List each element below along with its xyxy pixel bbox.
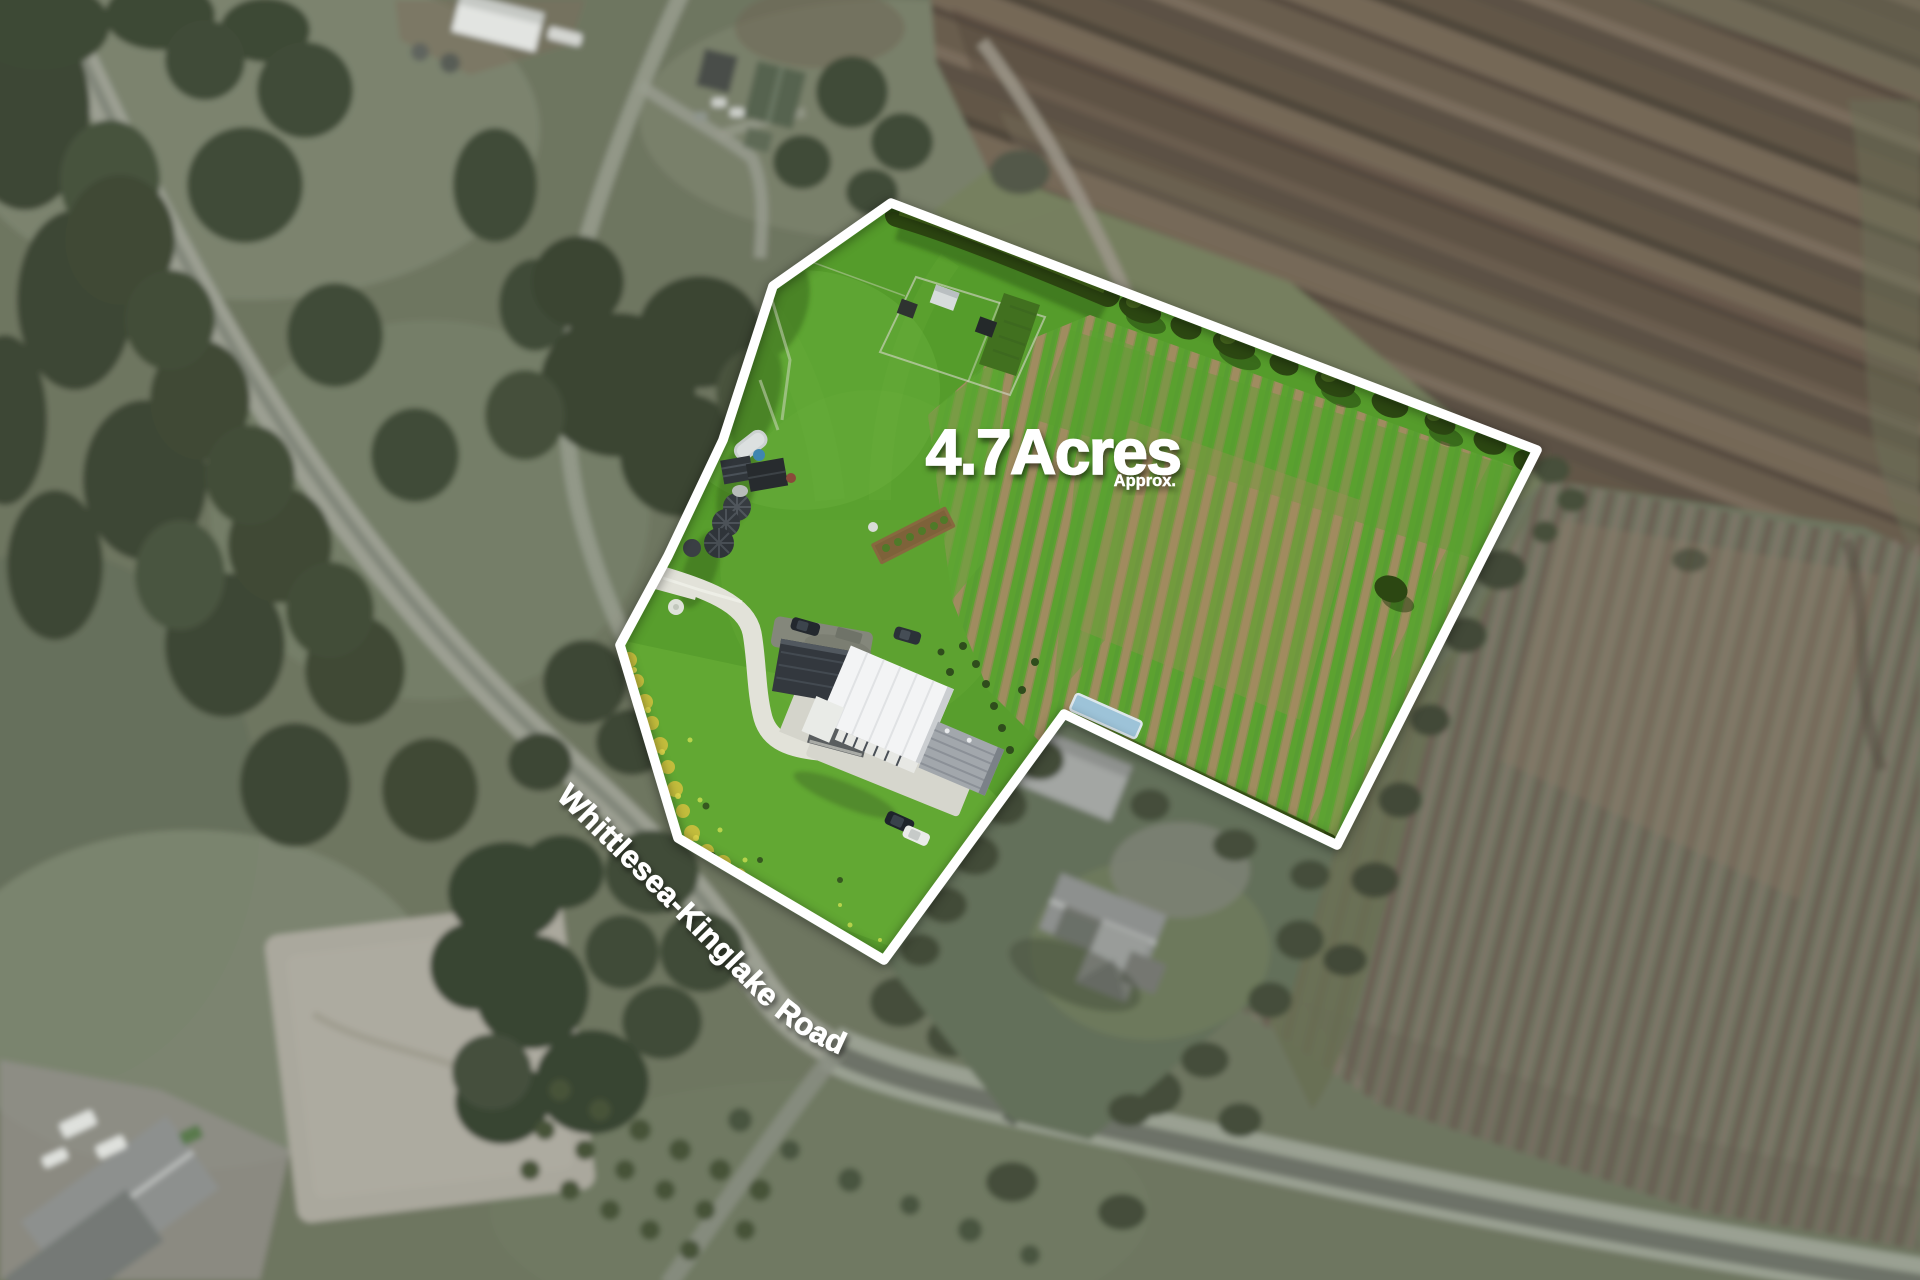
svg-text:Approx.: Approx. — [1114, 472, 1176, 490]
